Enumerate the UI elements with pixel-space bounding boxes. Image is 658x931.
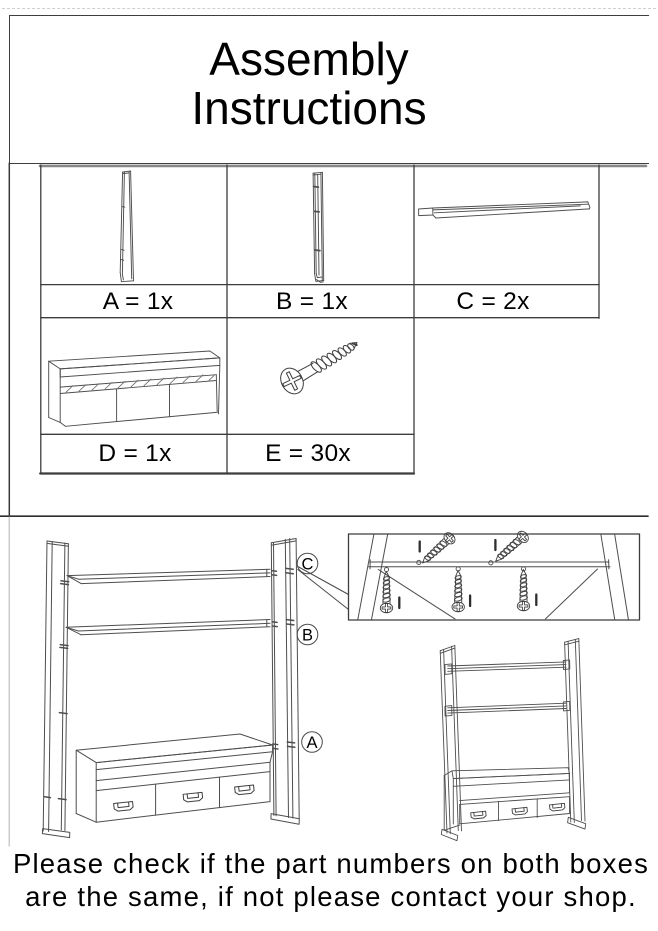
svg-text:C: C bbox=[302, 555, 314, 573]
svg-text:A: A bbox=[306, 734, 317, 752]
svg-text:B: B bbox=[302, 626, 313, 644]
